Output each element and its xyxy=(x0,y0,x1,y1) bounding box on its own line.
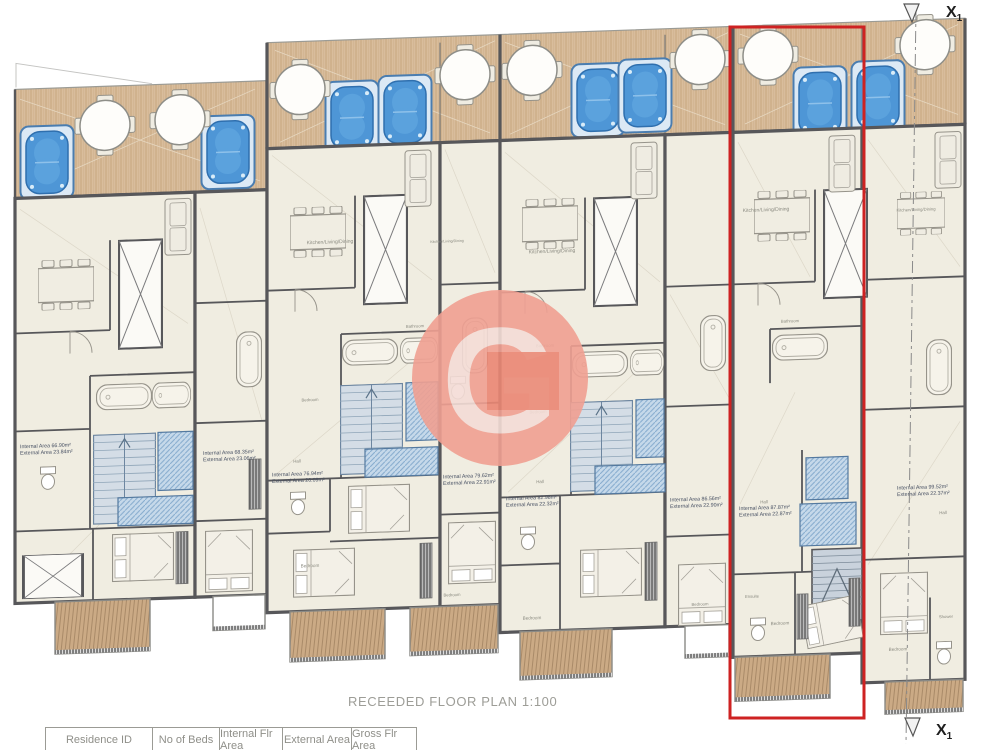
hot-tub-icon xyxy=(572,63,625,138)
area-annotation: Internal Area 82.98m²External Area 22.32… xyxy=(506,494,559,508)
dining-table-icon xyxy=(290,206,346,258)
table-header-3: External Area xyxy=(282,727,352,750)
room-label: Bathroom xyxy=(781,318,800,324)
wet-corridor xyxy=(118,495,193,526)
bed-icon xyxy=(449,521,496,584)
lift-shaft-icon xyxy=(23,554,82,599)
room-label: Hall xyxy=(536,479,544,484)
dining-table-icon xyxy=(522,198,578,250)
bathtub-icon xyxy=(152,382,190,408)
sofa-icon xyxy=(935,131,961,188)
room-label: Bedroom xyxy=(301,563,320,569)
lift-shaft-icon xyxy=(364,195,407,305)
wet-corridor xyxy=(800,502,856,546)
hot-tub-icon xyxy=(21,125,74,200)
lift-shaft-icon xyxy=(119,239,162,349)
room-label: Hall xyxy=(939,510,947,515)
section-marker-label-top: X1 xyxy=(946,4,962,24)
room-label: Bathroom xyxy=(406,323,425,329)
floor-plan-drawing: Internal Area 66.90m²External Area 23.84… xyxy=(0,0,1000,750)
hot-tub-icon xyxy=(852,60,905,135)
sofa-icon xyxy=(829,135,855,192)
area-annotation: Internal Area 66.90m²External Area 23.84… xyxy=(20,442,73,456)
table-header-0: Residence ID xyxy=(45,727,153,750)
wet-corridor xyxy=(595,464,665,494)
dining-table-icon xyxy=(897,191,945,236)
sofa-icon xyxy=(405,150,431,207)
bed-icon xyxy=(881,572,928,635)
room-label: Bedroom xyxy=(523,615,542,621)
shower-room xyxy=(636,399,664,458)
bed-icon xyxy=(581,548,642,597)
bed-icon xyxy=(113,532,174,581)
room-label: Bedroom xyxy=(444,592,461,598)
table-header-4: Gross Flr Area xyxy=(351,727,417,750)
hot-tub-icon xyxy=(379,74,432,149)
bed-icon xyxy=(679,563,726,626)
shower-room xyxy=(158,431,193,490)
bathtub-icon xyxy=(630,349,663,375)
area-annotation: Internal Area 76.94m²External Area 20.09… xyxy=(272,471,325,485)
residence-table: Residence IDNo of BedsInternal Flr AreaE… xyxy=(45,727,417,750)
table-header-2: Internal Flr Area xyxy=(219,727,283,750)
area-annotation: Internal Area 79.62m²External Area 22.91… xyxy=(443,473,496,487)
room-label: Bedroom xyxy=(771,620,790,626)
bathtub-icon xyxy=(701,315,726,371)
area-annotation: Internal Area 86.56m²External Area 22.90… xyxy=(670,496,723,510)
watermark: G xyxy=(412,290,588,466)
room-label: Bedroom xyxy=(692,601,709,607)
bathtub-icon xyxy=(97,383,152,410)
bathtub-icon xyxy=(773,334,828,361)
unit-6 xyxy=(665,132,733,626)
wet-corridor xyxy=(365,447,438,478)
dining-table-icon xyxy=(754,190,810,242)
section-marker-triangle-bottom xyxy=(905,718,920,736)
area-annotation: Internal Area 87.87m²External Area 22.87… xyxy=(739,504,792,518)
room-label: Bedroom xyxy=(302,397,319,403)
bed-icon xyxy=(294,548,355,597)
area-annotation: Internal Area 68.35m²External Area 23.06… xyxy=(203,449,256,463)
toilet-icon xyxy=(937,641,952,664)
room-label: Hall xyxy=(760,499,768,504)
hot-tub-icon xyxy=(619,58,672,133)
room-label: Shower xyxy=(939,614,954,620)
bed-icon xyxy=(349,484,410,533)
plan-title: RECEEDED FLOOR PLAN 1:100 xyxy=(348,694,557,709)
toilet-icon xyxy=(291,492,306,515)
dining-table-icon xyxy=(38,259,94,311)
bathtub-icon xyxy=(927,339,952,395)
toilet-icon xyxy=(751,618,766,641)
lift-shaft-icon xyxy=(824,189,867,299)
section-marker-label-bottom: X1 xyxy=(936,722,952,742)
lift-shaft-icon xyxy=(594,197,637,307)
area-annotation: Internal Area 99.52m²External Area 22.37… xyxy=(897,484,950,498)
room-label: Ensuite xyxy=(745,593,760,599)
toilet-icon xyxy=(521,527,536,550)
shower-room xyxy=(806,456,848,499)
bathtub-icon xyxy=(237,331,262,387)
table-header-1: No of Beds xyxy=(152,727,220,750)
bathtub-icon xyxy=(343,339,398,366)
bed-icon xyxy=(206,530,253,593)
roof-outline xyxy=(16,59,152,89)
toilet-icon xyxy=(41,467,56,490)
sofa-icon xyxy=(165,198,191,255)
room-label: Bedroom xyxy=(889,646,908,652)
room-label: Hall xyxy=(293,458,301,463)
floor-plan-page: Internal Area 66.90m²External Area 23.84… xyxy=(0,0,1000,750)
sofa-icon xyxy=(631,142,657,199)
